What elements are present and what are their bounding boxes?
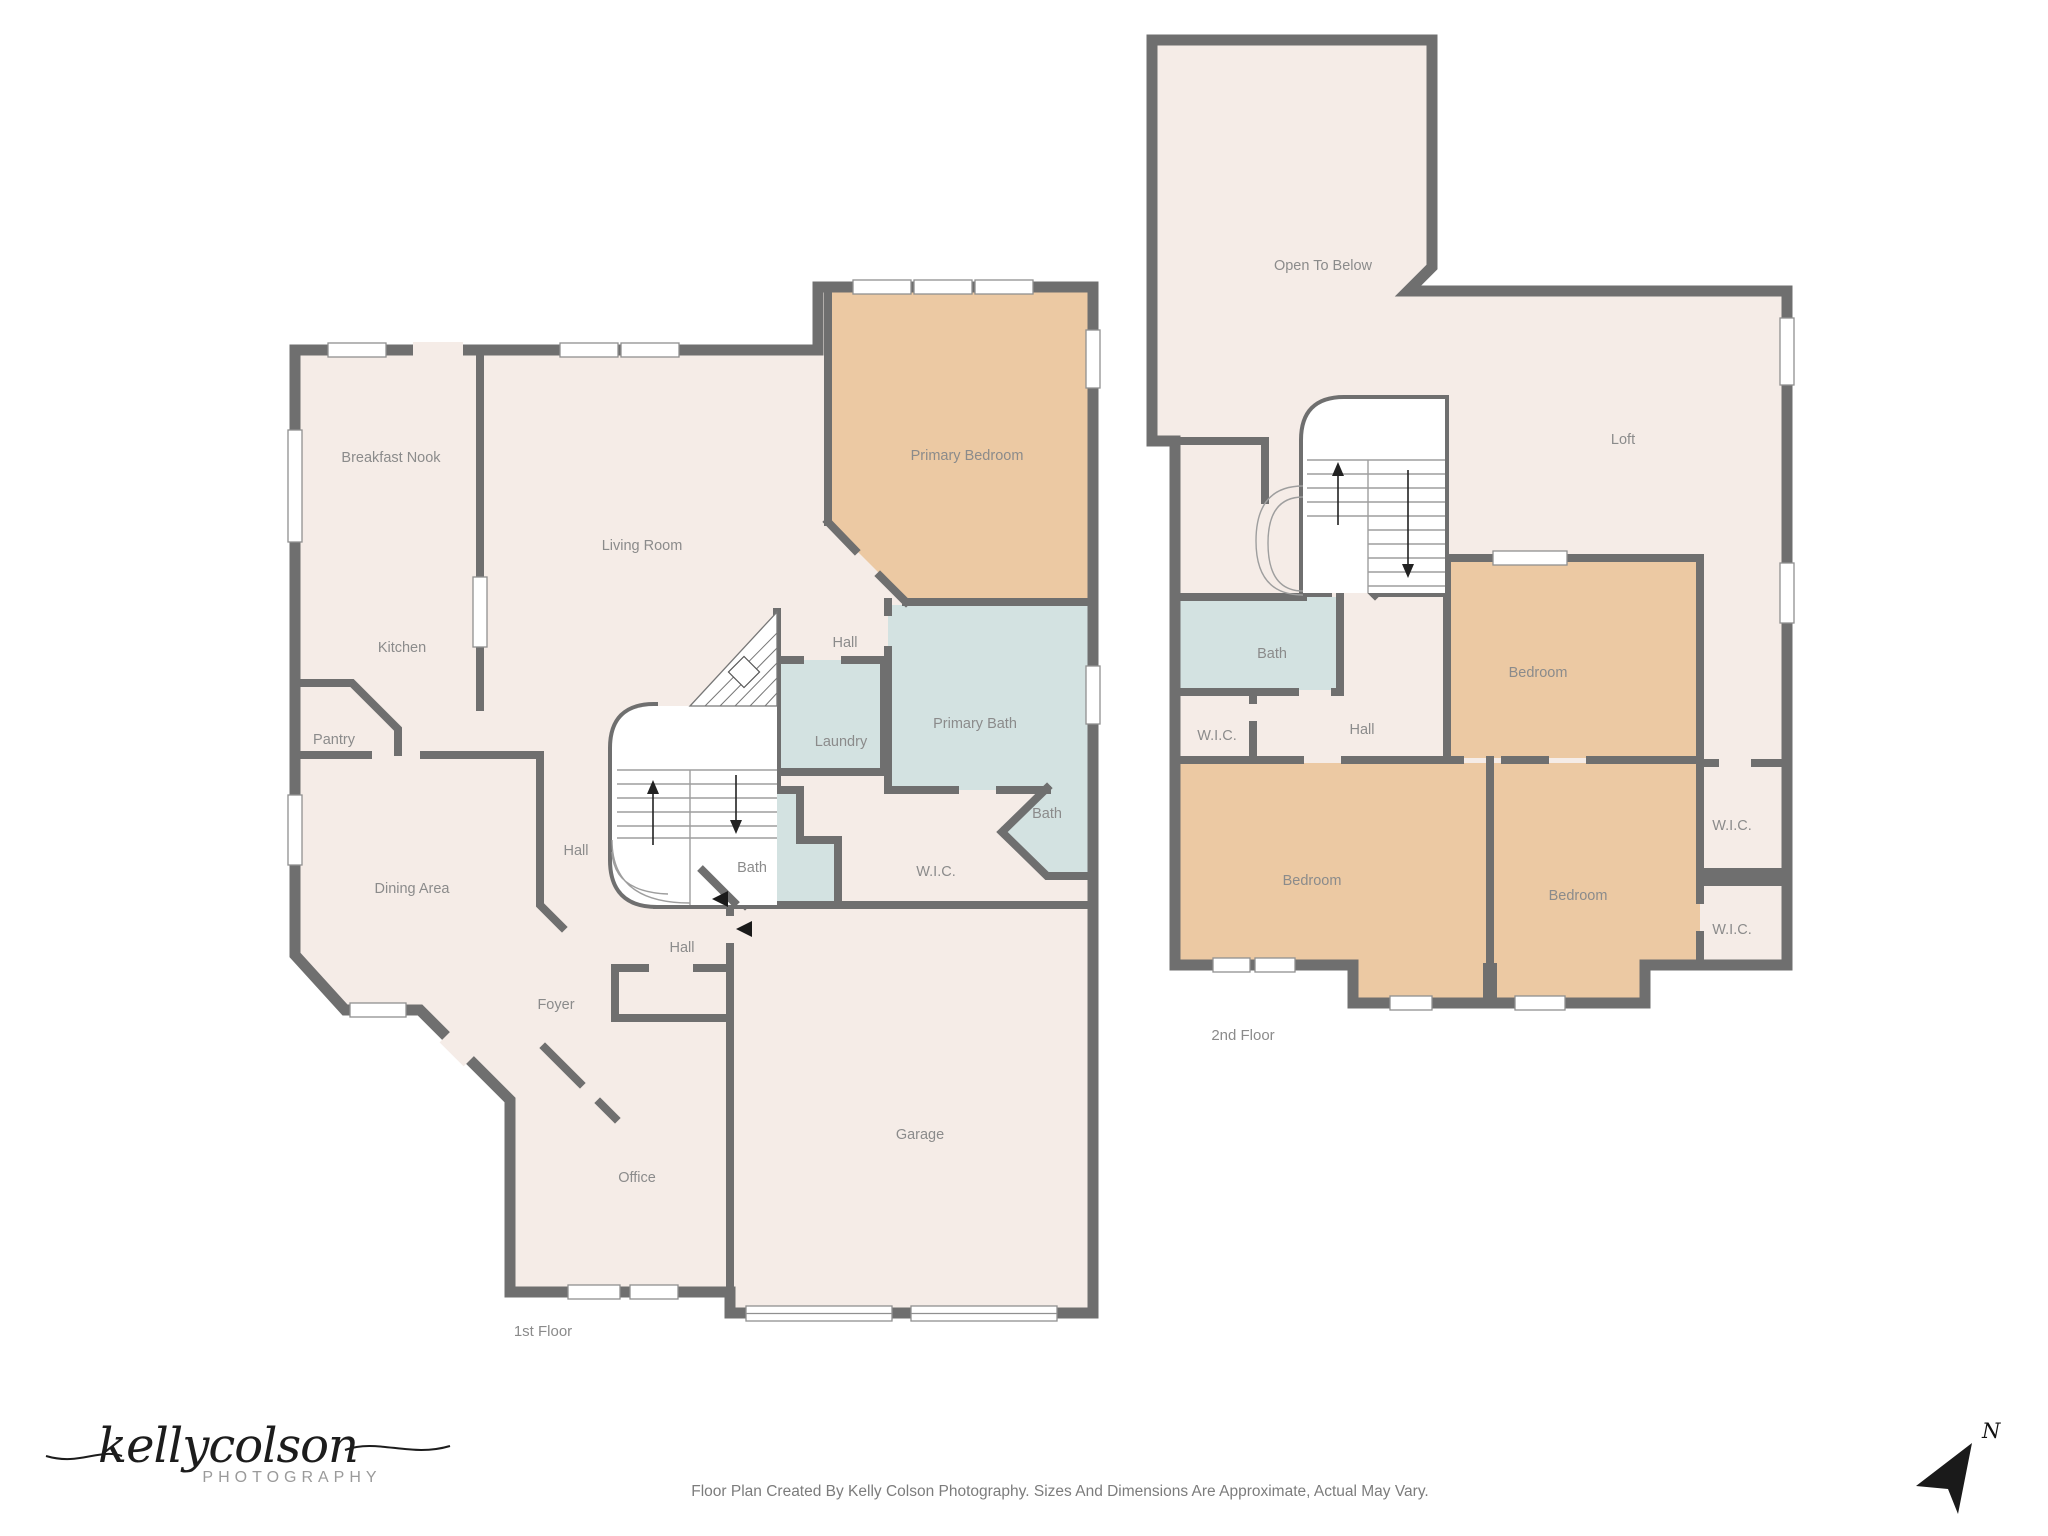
stair2-floor	[1303, 399, 1445, 593]
room-fill-bath2	[1172, 597, 1340, 690]
floor-plan-drawing: Breakfast Nook Kitchen Pantry Dining Are…	[0, 0, 2048, 1536]
label-bedroom-s: Bedroom	[1549, 888, 1608, 904]
branding-logo: kellycolson PHOTOGRAPHY	[46, 1418, 450, 1486]
logo-right-swash	[345, 1446, 450, 1450]
bottom-pillar-block	[1483, 963, 1497, 1007]
label-loft: Loft	[1611, 432, 1635, 448]
label-primary-bath: Primary Bath	[933, 716, 1017, 732]
compass: N	[1916, 1419, 2001, 1514]
label-breakfast-nook: Breakfast Nook	[341, 450, 441, 466]
room-fill-laundry	[777, 660, 884, 772]
logo-subtitle: PHOTOGRAPHY	[202, 1469, 381, 1486]
label-wic-lower: W.I.C.	[1712, 922, 1751, 938]
label-wic1: W.I.C.	[916, 864, 955, 880]
label-pantry: Pantry	[313, 732, 356, 748]
label-laundry: Laundry	[815, 734, 868, 750]
label-garage: Garage	[896, 1127, 944, 1143]
north-arrow-icon	[1916, 1443, 1972, 1514]
label-open-to-below: Open To Below	[1274, 258, 1373, 274]
label-bath2: Bath	[1257, 646, 1287, 662]
label-office: Office	[618, 1170, 656, 1186]
compass-label: N	[1981, 1419, 2001, 1443]
label-bath-bay: Bath	[1032, 806, 1062, 822]
label-wic-left: W.I.C.	[1197, 728, 1236, 744]
label-bath1: Bath	[737, 860, 767, 876]
label-bedroom-sw: Bedroom	[1283, 873, 1342, 889]
wic-divider-block	[1700, 868, 1787, 886]
room-fill-bedroom-ne	[1447, 558, 1700, 758]
label-hall-upper: Hall	[833, 635, 858, 651]
label-hall-center: Hall	[564, 843, 589, 859]
label-bedroom-ne: Bedroom	[1509, 665, 1568, 681]
room-fill-primary-bath	[888, 605, 1088, 790]
label-kitchen: Kitchen	[378, 640, 426, 656]
footer-caption: Floor Plan Created By Kelly Colson Photo…	[691, 1483, 1428, 1500]
label-hall2: Hall	[1350, 722, 1375, 738]
first-floor-plan: Breakfast Nook Kitchen Pantry Dining Are…	[288, 280, 1100, 1340]
label-wic-upper: W.I.C.	[1712, 818, 1751, 834]
room-fill-primary-bedroom	[828, 292, 1088, 600]
label-primary-bedroom: Primary Bedroom	[911, 448, 1024, 464]
second-floor-plan: Open To Below Loft Bath W.I.C. Hall Bedr…	[1152, 40, 1794, 1044]
floor2-caption: 2nd Floor	[1211, 1027, 1274, 1044]
label-hall-lower: Hall	[670, 940, 695, 956]
label-dining-area: Dining Area	[375, 881, 451, 897]
label-foyer: Foyer	[537, 997, 574, 1013]
floor-plan-page: Breakfast Nook Kitchen Pantry Dining Are…	[0, 0, 2048, 1536]
label-living-room: Living Room	[602, 538, 683, 554]
floor1-caption: 1st Floor	[514, 1323, 572, 1340]
logo-script-text: kellycolson	[98, 1418, 358, 1474]
